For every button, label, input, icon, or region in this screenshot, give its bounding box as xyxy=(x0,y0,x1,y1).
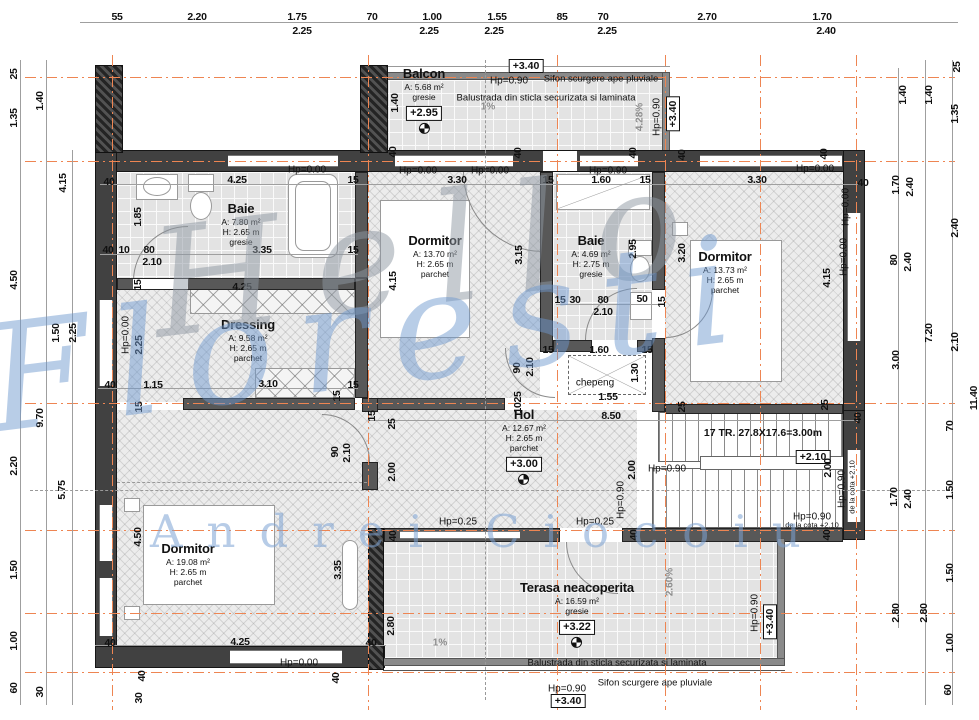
dim-label: 4.15 xyxy=(57,173,69,192)
axis-line xyxy=(665,55,666,710)
dim-label: Hp=0.00 xyxy=(841,188,852,226)
dim-label: 15 xyxy=(641,344,652,356)
dim-label: Hp=0.00 xyxy=(796,164,834,175)
dim-label: 4.28% xyxy=(635,103,646,131)
room-info-line: A: 13.73 m² xyxy=(698,265,751,275)
dim-label: 25 xyxy=(676,401,688,412)
room-name: Dressing xyxy=(221,317,275,333)
terrace-edge-line xyxy=(383,670,785,671)
dim-label: 15 xyxy=(347,244,358,256)
dim-label: 40 xyxy=(818,148,830,159)
dim-label: 2.70 xyxy=(697,11,716,23)
dim-label: 1.35 xyxy=(8,108,20,127)
room-info-line: A: 4.69 m² xyxy=(571,249,610,259)
dimension-line xyxy=(100,184,858,185)
dim-label: 40 xyxy=(627,147,639,158)
room-label-dressing: DressingA: 9.58 m²H: 2.65 mparchet xyxy=(221,317,275,363)
dim-label: 3.30 xyxy=(747,174,766,186)
dim-label: 7.20 xyxy=(923,323,935,342)
dim-label: 4.15 xyxy=(387,271,399,290)
room-info-line: A: 16.59 m² xyxy=(520,596,634,606)
dim-label: 1.50 xyxy=(8,560,20,579)
room-info-line: parchet xyxy=(502,443,546,453)
dim-label: 40 xyxy=(387,530,399,541)
dim-label: 2.25 xyxy=(419,25,438,37)
dim-label: 2.95 xyxy=(627,239,639,258)
dimension-line xyxy=(98,388,358,389)
dim-label: 2.60% xyxy=(665,568,676,596)
dim-label: 70 xyxy=(366,11,377,23)
dim-label: 15 xyxy=(542,174,553,186)
section-line xyxy=(30,490,950,491)
dim-label: 15 xyxy=(331,390,343,401)
dim-label: 30 xyxy=(133,692,145,703)
dim-label: 2.10 xyxy=(593,306,612,318)
annotation-label: Balustrada din sticla securizata si lami… xyxy=(527,658,706,669)
room-info-line: H: 2.65 m xyxy=(502,433,546,443)
dim-label: 2.10 xyxy=(341,443,353,462)
dim-label: 40 xyxy=(857,177,868,189)
dim-label: 2.80 xyxy=(890,603,902,622)
room-info-line: H: 2.65 m xyxy=(408,259,461,269)
room-info-line: H: 2.75 m xyxy=(571,259,610,269)
dim-label: Hp=0.90 xyxy=(652,98,663,136)
dim-label: 40 xyxy=(104,637,115,649)
dim-label: 15 xyxy=(347,174,358,186)
terrace-parapet-right xyxy=(777,538,785,666)
wall-baie2-bottom-a xyxy=(553,340,592,352)
wall-baie2-right-lower xyxy=(652,338,665,412)
dim-label: 2.20 xyxy=(8,456,20,475)
level-badge: +3.00 xyxy=(506,457,542,472)
level-mark-icon xyxy=(419,123,430,134)
dim-label: 3.00 xyxy=(890,350,902,369)
dim-label: 15 xyxy=(347,379,358,391)
nightstand xyxy=(672,222,688,236)
dim-label: 70 xyxy=(944,420,956,431)
room-info-line: A: 13.70 m² xyxy=(408,249,461,259)
dim-label: 1.00 xyxy=(422,11,441,23)
dim-label: 3.35 xyxy=(332,560,344,579)
room-name: Terasa neacoperita xyxy=(520,580,634,596)
dim-label: 80 xyxy=(888,254,900,265)
room-name: Balcon xyxy=(403,66,445,82)
dim-label: 1.55 xyxy=(487,11,506,23)
dim-label: 1.35 xyxy=(949,104,961,123)
dim-label: 40 xyxy=(102,244,113,256)
wall-baie2-left xyxy=(540,172,553,352)
room-info-line: gresie xyxy=(571,269,610,279)
dim-label: 1.55 xyxy=(598,391,617,403)
dim-label: 40 xyxy=(103,176,114,188)
dim-label: 4.50 xyxy=(8,270,20,289)
dim-label: 2.25 xyxy=(484,25,503,37)
dimension-line xyxy=(898,68,899,628)
dim-label: 60 xyxy=(8,682,20,693)
dim-label: +3.40 xyxy=(763,605,777,640)
axis-line xyxy=(25,530,955,531)
dim-label: 2.00 xyxy=(386,462,398,481)
wardrobe xyxy=(190,286,355,314)
dim-label: 2.40 xyxy=(904,177,916,196)
dim-label: 25 xyxy=(819,399,831,410)
dim-label: 1.60 xyxy=(589,344,608,356)
dim-label: 2.00 xyxy=(822,458,834,477)
room-label-hol: HolA: 12.67 m²H: 2.65 mparchet+3.00 xyxy=(502,407,546,485)
window xyxy=(99,300,113,386)
room-info-line: parchet xyxy=(408,269,461,279)
axis-line xyxy=(368,55,369,710)
room-info-line: gresie xyxy=(403,92,445,102)
dim-label: 55 xyxy=(111,11,122,23)
dim-label: 1.40 xyxy=(34,91,46,110)
dim-label: Hp=0.25 xyxy=(439,517,477,528)
dim-label: 3.20 xyxy=(676,243,688,262)
room-info-line: A: 5.68 m² xyxy=(403,82,445,92)
room-info-line: H: 2.65 m xyxy=(161,567,214,577)
dim-label: 4.25 xyxy=(232,281,251,293)
dim-label: Hp=0.90 xyxy=(616,481,627,519)
toilet-bowl xyxy=(190,192,212,220)
dim-label: 40 xyxy=(104,379,115,391)
dim-label: 2.40 xyxy=(902,489,914,508)
dim-label: 40 xyxy=(852,412,864,423)
dim-label: 2.25 xyxy=(67,323,79,342)
room-label-dormitor: DormitorA: 13.70 m²H: 2.65 mparchet xyxy=(408,233,461,279)
dim-label: de la cota +2.10 xyxy=(848,460,857,514)
level-mark-icon xyxy=(519,474,530,485)
dim-label: chepeng xyxy=(576,378,614,389)
dim-label: 80 xyxy=(143,244,154,256)
room-label-baie: BaieA: 7.80 m²H: 2.65 mgresie xyxy=(221,201,260,247)
dim-label: 1.85 xyxy=(132,207,144,226)
dim-label: 2.40 xyxy=(902,252,914,271)
annotation-label: Sifon scurgere ape pluviale xyxy=(544,74,659,85)
wall-pillar xyxy=(95,65,123,153)
dim-label: 1.75 xyxy=(287,11,306,23)
dim-label: 1.15 xyxy=(143,379,162,391)
dim-label: Hp=0.00 xyxy=(121,316,132,354)
dim-label: 15 xyxy=(366,410,378,421)
dim-label: Hp=0.90 xyxy=(750,594,761,632)
dim-label: 1.00 xyxy=(944,633,956,652)
dim-label: 15 xyxy=(656,296,668,307)
dim-label: 1.50 xyxy=(50,323,62,342)
bathtub-inner xyxy=(295,181,331,251)
window xyxy=(400,531,520,539)
dim-label: 40 xyxy=(387,146,399,157)
dim-label: 1.50 xyxy=(944,563,956,582)
dim-label: 70 xyxy=(597,11,608,23)
toilet-bowl xyxy=(630,256,650,282)
dim-label: 1.70 xyxy=(888,487,900,506)
room-name: Baie xyxy=(221,201,260,217)
dim-label: 10 xyxy=(118,244,129,256)
dim-label: 2.80 xyxy=(385,616,397,635)
dim-label: 1% xyxy=(481,102,495,113)
level-badge: +2.95 xyxy=(406,106,442,121)
dim-label: 1.50 xyxy=(944,480,956,499)
dim-label: 25 xyxy=(8,68,20,79)
dim-label: 40 xyxy=(136,670,148,681)
dim-label: 3.30 xyxy=(447,174,466,186)
dim-label: 30 xyxy=(569,294,580,306)
dimension-line xyxy=(100,254,358,255)
room-name: Baie xyxy=(571,233,610,249)
room-label-baie: BaieA: 4.69 m²H: 2.75 mgresie xyxy=(571,233,610,279)
dim-label: 40 xyxy=(512,147,524,158)
dim-label: 1.40 xyxy=(923,85,935,104)
dim-label: 15 xyxy=(554,294,565,306)
dim-label: 85 xyxy=(556,11,567,23)
axis-line xyxy=(25,161,955,162)
dim-label: 1.70 xyxy=(890,175,902,194)
room-info-line: A: 12.67 m² xyxy=(502,422,546,432)
room-name: Dormitor xyxy=(408,233,461,249)
dim-label: 15 xyxy=(132,279,144,290)
section-line xyxy=(485,60,486,700)
annotation-label: Sifon scurgere ape pluviale xyxy=(598,678,713,689)
dim-label: 2.10 xyxy=(524,357,536,376)
dim-label: 2.40 xyxy=(949,218,961,237)
dim-label: Hp=0.90 xyxy=(490,76,528,87)
dim-label: Hp=0.00 xyxy=(839,238,850,276)
room-label-balcon: BalconA: 5.68 m²gresie+2.95 xyxy=(403,66,445,134)
window xyxy=(847,213,861,341)
dim-label: Hp=0.00 xyxy=(288,165,326,176)
dim-label: 1.40 xyxy=(897,85,909,104)
dim-label: 40 xyxy=(821,529,833,540)
dim-label: 3.15 xyxy=(513,245,525,264)
dim-label: 2.25 xyxy=(292,25,311,37)
dim-label: Hp=0.00 xyxy=(471,166,509,177)
dim-label: de la cota +2.10 xyxy=(785,521,839,530)
dimension-line xyxy=(952,60,953,705)
dim-label: 2.40 xyxy=(816,25,835,37)
dim-label: 8.50 xyxy=(601,410,620,422)
room-label-terasa-neacoperita: Terasa neacoperitaA: 16.59 m²gresie+3.22 xyxy=(520,580,634,648)
dim-label: 15 xyxy=(133,401,145,412)
axis-line xyxy=(25,672,955,673)
dim-label: 4.50 xyxy=(132,527,144,546)
wall-baie1-right xyxy=(355,172,368,278)
dim-label: 40 xyxy=(628,529,640,540)
dim-label: 90 xyxy=(511,362,523,373)
dim-label: 50 xyxy=(636,293,647,305)
dim-label: 4.15 xyxy=(821,268,833,287)
dim-label: 1.70 xyxy=(812,11,831,23)
dim-label: Hp=0.25 xyxy=(576,517,614,528)
room-info-line: parchet xyxy=(221,353,275,363)
open-boundary xyxy=(117,482,367,483)
dim-label: Hp=0.90 xyxy=(648,464,686,475)
dim-label: 15 xyxy=(542,344,553,356)
dim-label: Hp=0.00 xyxy=(280,658,318,669)
dim-label: Hp=0.90 xyxy=(837,470,848,508)
dim-label: +3.40 xyxy=(509,59,544,73)
dim-label: 40 xyxy=(365,637,376,649)
dim-label: 4.25 xyxy=(230,636,249,648)
room-info-line: A: 19.08 m² xyxy=(161,557,214,567)
dimension-line xyxy=(20,60,21,705)
room-label-dormitor: DormitorA: 13.73 m²H: 2.65 mparchet xyxy=(698,249,751,295)
dim-label: 2.10 xyxy=(949,332,961,351)
wall-baie2-right-upper xyxy=(652,172,665,290)
axis-line xyxy=(25,403,955,404)
dim-label: 2.20 xyxy=(187,11,206,23)
dim-label: +3.40 xyxy=(666,97,680,132)
dim-label: 80 xyxy=(597,294,608,306)
room-info-line: H: 2.65 m xyxy=(698,275,751,285)
dim-label: 2.25 xyxy=(597,25,616,37)
dim-label: 2.10 xyxy=(142,256,161,268)
dim-label: 10 xyxy=(512,402,524,413)
room-info-line: H: 2.65 m xyxy=(221,343,275,353)
room-name: Hol xyxy=(502,407,546,423)
nightstand xyxy=(124,498,140,512)
dim-label: 25 xyxy=(512,391,524,402)
sink-basin xyxy=(143,177,171,196)
dim-label: 15 xyxy=(639,174,650,186)
dim-label: 2.80 xyxy=(918,603,930,622)
room-name: Dormitor xyxy=(698,249,751,265)
dim-label: 3.35 xyxy=(252,244,271,256)
dim-label: 90 xyxy=(329,446,341,457)
window xyxy=(99,505,113,561)
room-label-dormitor: DormitorA: 19.08 m²H: 2.65 mparchet xyxy=(161,541,214,587)
room-info-line: parchet xyxy=(698,285,751,295)
room-info-line: H: 2.65 m xyxy=(221,227,260,237)
dim-label: 1.30 xyxy=(629,363,641,382)
dim-label: +3.40 xyxy=(551,694,586,708)
dim-label: 1.60 xyxy=(591,174,610,186)
level-badge: +3.22 xyxy=(559,620,595,635)
dim-label: 40 xyxy=(330,672,342,683)
dim-label: 3.10 xyxy=(258,378,277,390)
room-info-line: A: 9.58 m² xyxy=(221,333,275,343)
wall-dormitor2-bottom xyxy=(665,404,843,414)
dim-label: 1.40 xyxy=(389,93,401,112)
wall-dressing-bottom xyxy=(183,398,355,410)
sofa xyxy=(342,540,358,610)
window xyxy=(99,578,113,636)
dim-label: 11.40 xyxy=(968,386,979,410)
dim-label: 2.25 xyxy=(133,335,145,354)
dim-label: 1.00 xyxy=(8,631,20,650)
dim-label: 30 xyxy=(34,686,46,697)
room-info-line: parchet xyxy=(161,577,214,587)
dim-label: 17 TR. 27.8X17.6=3.00m xyxy=(704,427,822,439)
wall-pillar xyxy=(360,65,388,153)
dim-label: 9.70 xyxy=(34,408,46,427)
dim-label: 60 xyxy=(942,684,954,695)
dimension-line xyxy=(46,60,47,705)
level-mark-icon xyxy=(571,637,582,648)
dim-label: 40 xyxy=(676,149,688,160)
axis-line xyxy=(856,55,857,710)
room-info-line: A: 7.80 m² xyxy=(221,217,260,227)
dim-label: 25 xyxy=(951,61,963,72)
axis-line xyxy=(25,613,955,614)
room-info-line: gresie xyxy=(520,606,634,616)
dim-label: 4.25 xyxy=(227,174,246,186)
toilet-tank xyxy=(188,174,214,192)
wall-stub xyxy=(362,462,378,490)
dim-label: Hp=0.90 xyxy=(548,684,586,695)
dim-label: 2.00 xyxy=(626,460,638,479)
dim-label: 1% xyxy=(433,638,447,649)
floor-plan-canvas: Hello Floresti Andrei Ciocoiu BalconA: 5… xyxy=(0,0,979,720)
dim-label: 25 xyxy=(386,418,398,429)
dim-label: 5.75 xyxy=(56,480,68,499)
dimension-line xyxy=(72,150,73,705)
room-name: Dormitor xyxy=(161,541,214,557)
dim-label: Hp=0.00 xyxy=(399,166,437,177)
